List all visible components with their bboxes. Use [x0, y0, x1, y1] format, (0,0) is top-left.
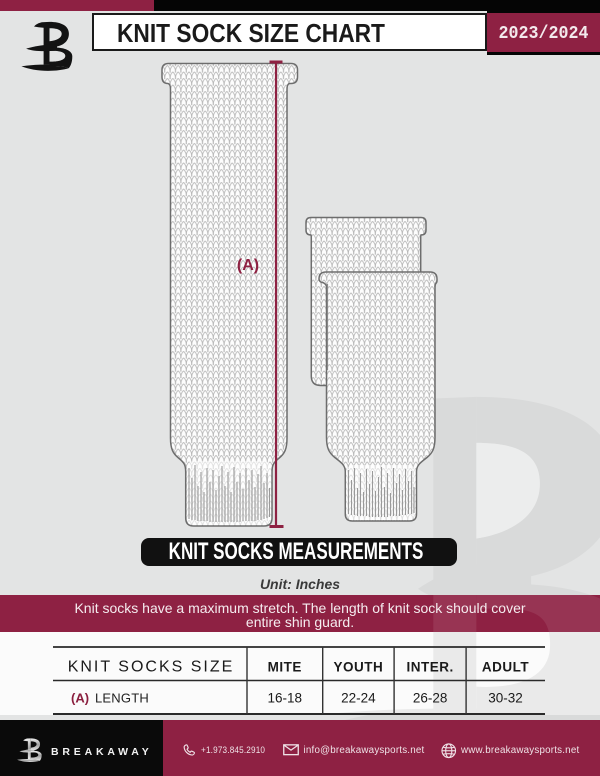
svg-text:ADULT: ADULT [482, 660, 529, 675]
svg-text:26-28: 26-28 [413, 691, 448, 706]
svg-text:22-24: 22-24 [341, 691, 376, 706]
svg-text:30-32: 30-32 [488, 691, 523, 706]
svg-text:LENGTH: LENGTH [95, 691, 149, 706]
svg-text:(A): (A) [71, 691, 89, 706]
svg-text:KNIT SOCKS SIZE: KNIT SOCKS SIZE [68, 659, 235, 676]
svg-text:(A): (A) [237, 257, 259, 274]
svg-text:16-18: 16-18 [268, 691, 303, 706]
svg-text:YOUTH: YOUTH [334, 660, 384, 675]
svg-text:INTER.: INTER. [406, 660, 453, 675]
svg-text:MITE: MITE [268, 660, 302, 675]
